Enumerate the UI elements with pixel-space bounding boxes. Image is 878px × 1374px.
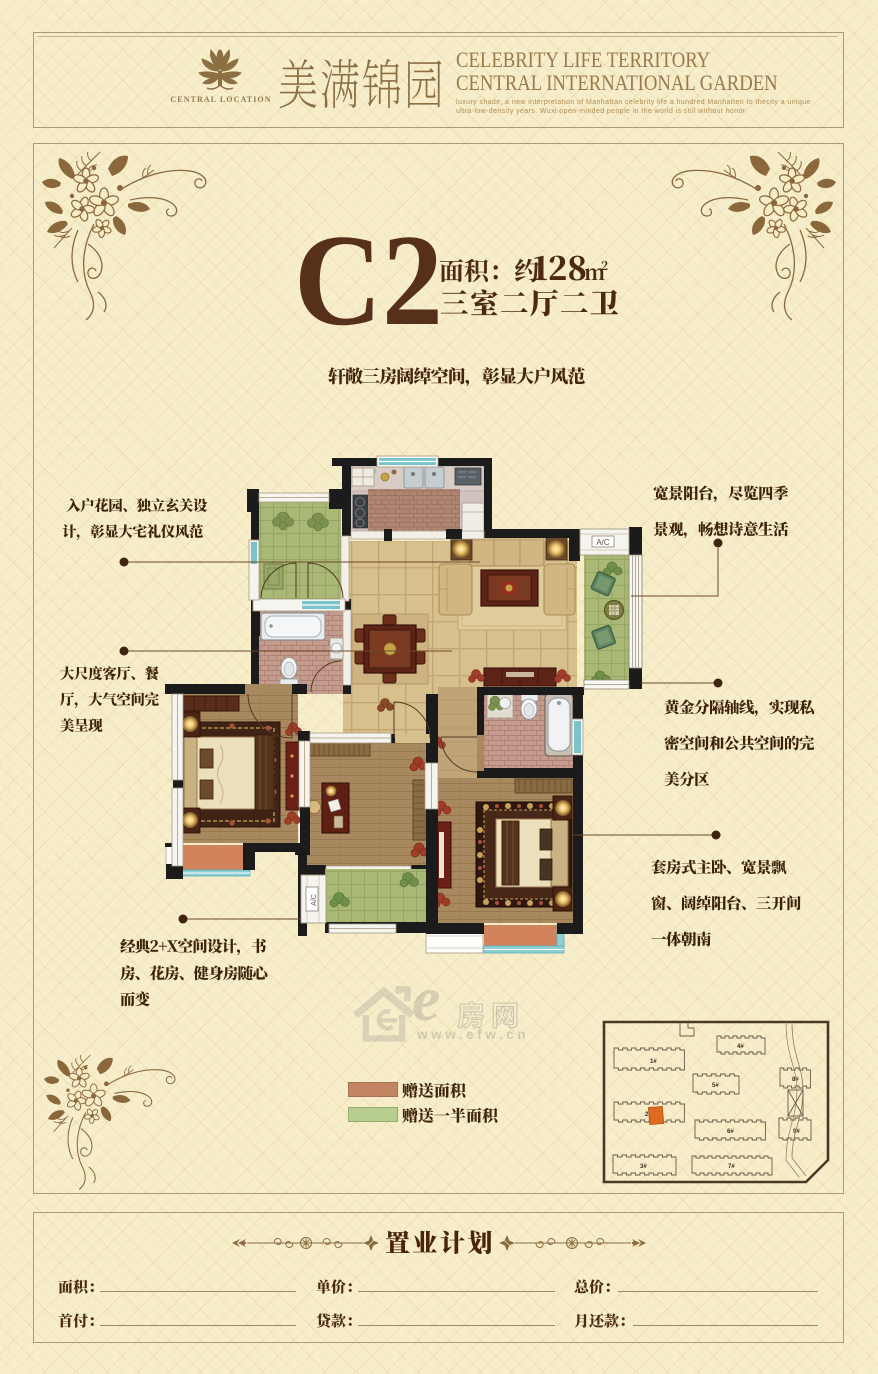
svg-text:5#: 5#: [712, 1083, 719, 1089]
svg-text:6#: 6#: [727, 1129, 734, 1135]
svg-text:3#: 3#: [640, 1164, 647, 1170]
svg-text:1#: 1#: [650, 1059, 657, 1065]
svg-text:9#: 9#: [793, 1129, 800, 1135]
svg-text:7#: 7#: [728, 1164, 735, 1170]
svg-text:4#: 4#: [737, 1044, 744, 1050]
